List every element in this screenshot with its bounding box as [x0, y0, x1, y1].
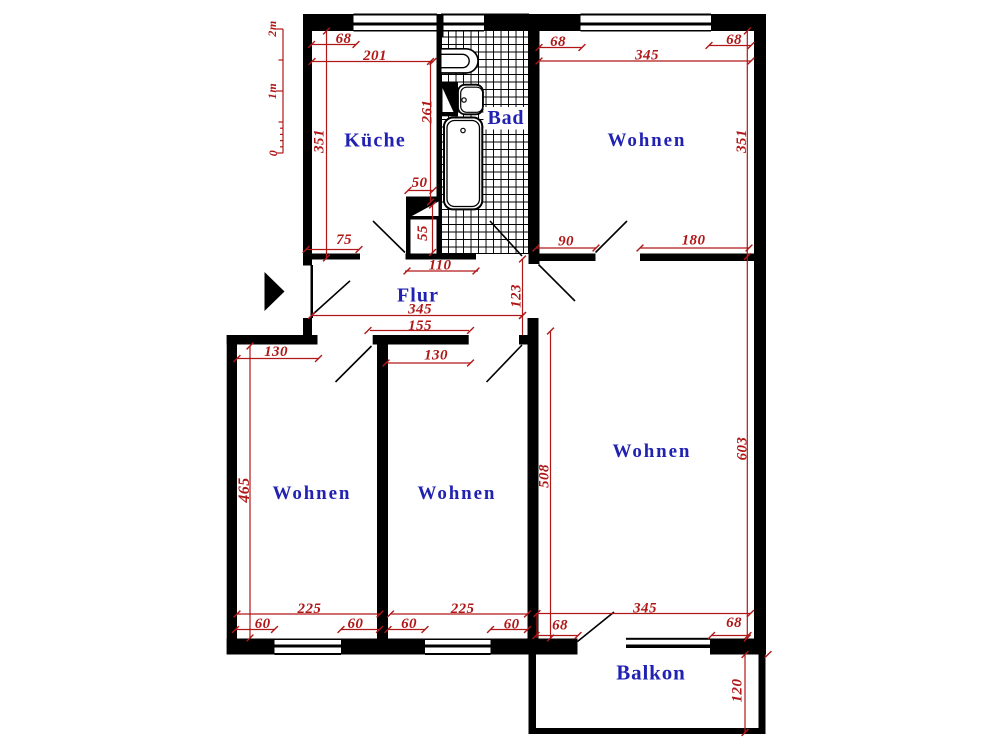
- svg-text:130: 130: [264, 344, 288, 360]
- svg-text:Wohnen: Wohnen: [613, 441, 690, 462]
- svg-text:155: 155: [408, 318, 432, 334]
- svg-text:110: 110: [429, 258, 452, 274]
- svg-text:130: 130: [424, 348, 448, 364]
- svg-text:68: 68: [552, 618, 568, 634]
- svg-text:60: 60: [347, 616, 363, 632]
- svg-text:Küche: Küche: [344, 130, 405, 152]
- svg-text:123: 123: [509, 284, 525, 308]
- svg-text:0: 0: [266, 150, 280, 156]
- svg-text:68: 68: [726, 32, 742, 48]
- svg-text:60: 60: [504, 617, 520, 633]
- svg-text:2m: 2m: [265, 20, 279, 37]
- svg-text:508: 508: [537, 464, 553, 488]
- svg-text:60: 60: [255, 616, 271, 632]
- svg-text:351: 351: [312, 129, 328, 154]
- svg-text:55: 55: [415, 225, 431, 241]
- svg-text:225: 225: [450, 601, 475, 617]
- svg-text:345: 345: [634, 48, 659, 64]
- svg-text:Balkon: Balkon: [616, 661, 685, 685]
- svg-text:345: 345: [632, 601, 657, 617]
- svg-text:Wohnen: Wohnen: [418, 483, 495, 504]
- svg-text:68: 68: [336, 31, 352, 47]
- svg-text:Wohnen: Wohnen: [608, 130, 685, 151]
- svg-text:603: 603: [734, 437, 750, 461]
- svg-text:261: 261: [420, 100, 436, 125]
- svg-text:120: 120: [730, 679, 746, 703]
- svg-text:465: 465: [236, 477, 253, 503]
- svg-text:Wohnen: Wohnen: [273, 483, 350, 504]
- svg-text:351: 351: [734, 129, 750, 154]
- svg-text:180: 180: [682, 233, 706, 249]
- svg-text:Bad: Bad: [488, 107, 524, 129]
- svg-text:50: 50: [412, 175, 428, 191]
- svg-text:90: 90: [558, 234, 574, 250]
- svg-text:75: 75: [336, 232, 352, 248]
- svg-text:201: 201: [362, 48, 387, 64]
- svg-text:1m: 1m: [265, 83, 279, 99]
- svg-text:60: 60: [401, 616, 417, 632]
- svg-text:Flur: Flur: [397, 285, 438, 307]
- svg-text:225: 225: [297, 601, 322, 617]
- svg-text:68: 68: [726, 615, 742, 631]
- svg-text:68: 68: [550, 34, 566, 50]
